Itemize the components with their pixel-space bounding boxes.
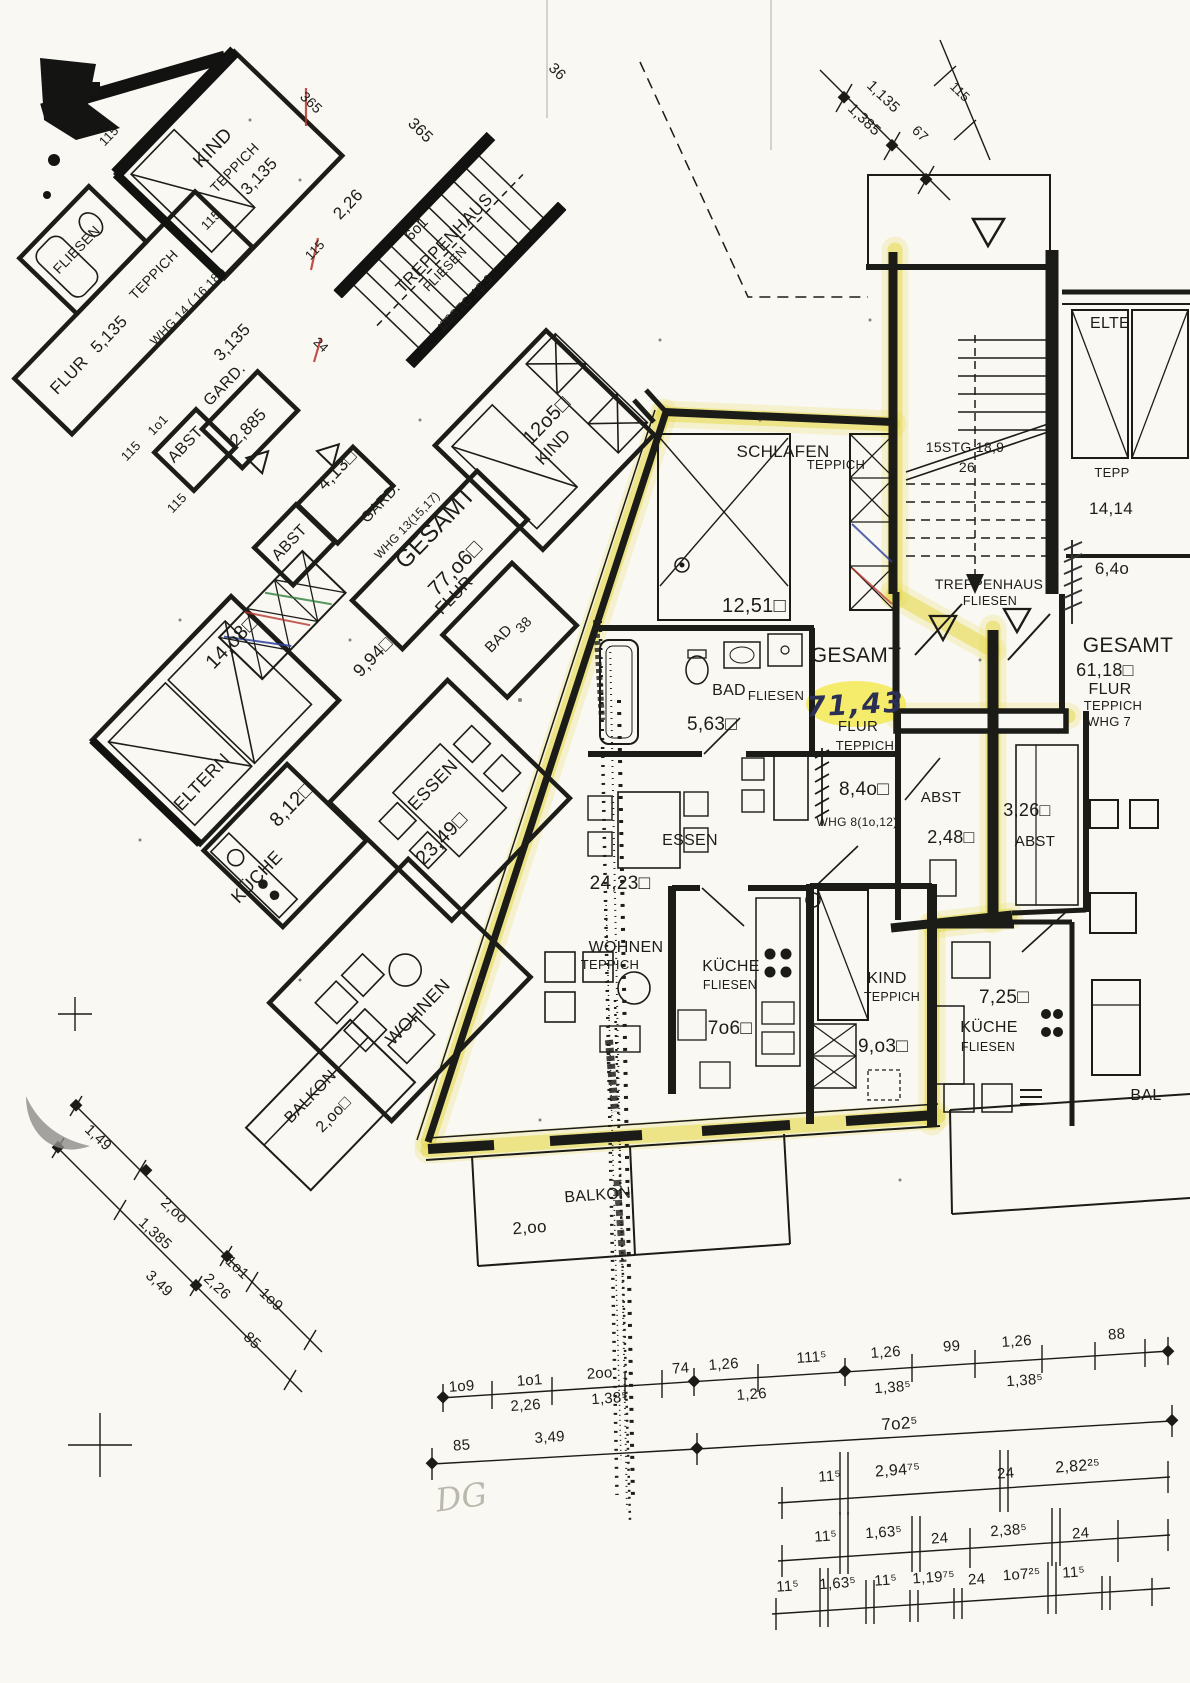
room-label: GARD. bbox=[358, 479, 404, 526]
dim-label: 11⁵ bbox=[814, 1527, 838, 1546]
room-label: TEPPICH bbox=[581, 957, 639, 972]
scanned-floorplan-page: KIND TEPPICH 3,135 115 115 2,26 115 365 … bbox=[0, 0, 1190, 1683]
dim-label: 3,49 bbox=[142, 1267, 176, 1300]
dim-label: 88 bbox=[1107, 1325, 1125, 1343]
dim-label: 7o2⁵ bbox=[881, 1413, 919, 1435]
dim-label: 11⁵ bbox=[818, 1467, 842, 1486]
room-label: KÜCHE bbox=[960, 1018, 1018, 1036]
dim-label: 365 bbox=[297, 88, 326, 116]
area-label: 6,4o bbox=[1095, 559, 1129, 578]
dim-label: 111⁵ bbox=[796, 1348, 827, 1367]
room-label: FLUR bbox=[46, 352, 91, 398]
room-label: WOHNEN bbox=[589, 939, 664, 956]
dim-label: 1,26 bbox=[736, 1385, 768, 1404]
area-label: 24,23□ bbox=[590, 873, 651, 894]
room-label: BAD bbox=[712, 682, 746, 699]
stairs bbox=[906, 335, 1048, 594]
dim-label: 115 bbox=[302, 237, 328, 263]
area-label: 3,26□ bbox=[1003, 800, 1050, 820]
dim-label: 115 bbox=[947, 79, 973, 105]
dim-label: 74 bbox=[671, 1359, 689, 1377]
room-label: ABST bbox=[1015, 833, 1055, 850]
dim-label: 1o9 bbox=[256, 1285, 287, 1315]
area-label: 61,18□ bbox=[1076, 660, 1134, 680]
area-label: 14,o8□ bbox=[202, 612, 262, 673]
dim-label: 2,38⁵ bbox=[990, 1521, 1028, 1541]
floorplan-canvas: KIND TEPPICH 3,135 115 115 2,26 115 365 … bbox=[0, 0, 1190, 1683]
dim-label: 99 bbox=[942, 1337, 960, 1355]
dim-label: 11⁵ bbox=[776, 1577, 800, 1596]
room-label: TEPPICH bbox=[1084, 698, 1142, 713]
room-label: BAL bbox=[1130, 1087, 1161, 1104]
dim-label: 1,19⁷⁵ bbox=[912, 1568, 956, 1588]
total-label: GESAMT bbox=[811, 644, 901, 667]
area-label: 8,4o□ bbox=[839, 779, 889, 800]
room-label: TEPPICH bbox=[836, 738, 894, 753]
area-label: 7,25□ bbox=[979, 987, 1029, 1008]
dim-label: 1,38⁵ bbox=[1006, 1371, 1044, 1391]
room-label: FLIESEN bbox=[748, 688, 804, 703]
dim-label: 3,135 bbox=[210, 320, 254, 365]
room-label: WOHNEN bbox=[381, 975, 454, 1049]
dim-label: 3,49 bbox=[534, 1428, 566, 1447]
dim-label: 1,26 bbox=[870, 1343, 902, 1362]
room-label: WHG 7 bbox=[1087, 714, 1131, 729]
room-label: TREPPENHAUS bbox=[935, 576, 1043, 592]
dim-label: 1o1 bbox=[145, 412, 171, 439]
dim-label: 2,oo bbox=[157, 1194, 191, 1227]
stair-label: 26 bbox=[959, 459, 975, 475]
dim-label: 115 bbox=[118, 438, 144, 464]
room-label: ELTERN bbox=[170, 749, 234, 814]
dim-label: 85 bbox=[452, 1436, 470, 1454]
apartment-label: WHG 8(1o,12) bbox=[817, 815, 898, 829]
dim-label: 85 bbox=[240, 1329, 264, 1353]
dim-label: 2,26 bbox=[329, 185, 366, 223]
room-label: FLIESEN bbox=[963, 594, 1017, 608]
dim-label: 24 bbox=[996, 1464, 1014, 1482]
area-label: 2,oo bbox=[512, 1217, 548, 1238]
room-label: ESSEN bbox=[404, 755, 462, 814]
dim-label: 1,385 bbox=[135, 1214, 175, 1253]
area-label: 7o6□ bbox=[708, 1018, 753, 1039]
room-label: ELTE bbox=[1090, 315, 1130, 332]
room-label: ABST bbox=[165, 424, 207, 467]
handwritten-total: 71,43 bbox=[805, 685, 905, 723]
dim-label: 1o1 bbox=[516, 1371, 543, 1390]
pencil-note: DG bbox=[432, 1475, 490, 1520]
wing-labels: KIND TEPPICH 3,135 115 115 2,26 115 365 … bbox=[46, 60, 973, 1136]
dim-label: 36 bbox=[545, 60, 569, 84]
area-label: 9,94□ bbox=[349, 633, 396, 681]
dim-label: 67 bbox=[909, 122, 932, 145]
dim-label: 1,135 bbox=[863, 77, 903, 116]
dim-label: 365 bbox=[404, 115, 436, 146]
dim-label: 2,94⁷⁵ bbox=[874, 1460, 920, 1480]
area-label: 9,o3□ bbox=[858, 1036, 908, 1057]
area-label: 8,12□ bbox=[266, 778, 318, 831]
dim-label: 2,82²⁵ bbox=[1055, 1456, 1101, 1476]
stair-label: 15STG 18,9 bbox=[926, 439, 1005, 455]
room-label: FLUR bbox=[1089, 681, 1132, 698]
dim-label: 1,26 bbox=[1001, 1332, 1033, 1351]
dim-label: 115 bbox=[198, 207, 224, 233]
dim-label: 1,63⁵ bbox=[865, 1523, 903, 1543]
room-label: ESSEN bbox=[662, 832, 718, 849]
dim-label: 115 bbox=[164, 490, 190, 516]
dim-label: 38 bbox=[512, 613, 535, 636]
room-label: ABST bbox=[921, 789, 961, 806]
dim-label: 1,26 bbox=[708, 1355, 740, 1374]
dim-label: 24 bbox=[930, 1529, 948, 1547]
area-label: 5,63□ bbox=[687, 714, 737, 735]
room-label: TEPPICH bbox=[807, 457, 865, 472]
dim-label: 11⁵ bbox=[1062, 1563, 1086, 1582]
dim-label: 1,38⁵ bbox=[874, 1378, 912, 1398]
room-label: KÜCHE bbox=[702, 957, 760, 975]
total-label: GESAMT bbox=[1083, 634, 1173, 657]
dim-label: 1o7²⁵ bbox=[1002, 1565, 1041, 1585]
dim-label: 11⁵ bbox=[874, 1571, 898, 1590]
dim-label: 24 bbox=[967, 1570, 985, 1588]
dim-label: 1o9 bbox=[448, 1377, 475, 1396]
dim-label: 24 bbox=[1071, 1524, 1089, 1542]
area-label: 2,48□ bbox=[927, 827, 974, 847]
dim-label: 1,63⁵ bbox=[819, 1574, 857, 1594]
dim-label: 1,385 bbox=[844, 100, 884, 139]
dim-label: 2,26 bbox=[510, 1396, 542, 1415]
room-label: FLIESEN bbox=[703, 978, 757, 992]
area-label: 12,51□ bbox=[722, 595, 786, 617]
dim-label: 5,135 bbox=[87, 312, 131, 357]
area-label: 14,14 bbox=[1089, 499, 1133, 518]
room-label: FLIESEN bbox=[50, 222, 104, 277]
room-label: FLIESEN bbox=[961, 1040, 1015, 1054]
dim-label: 24 bbox=[310, 334, 331, 355]
room-label: TEPPICH bbox=[864, 990, 920, 1004]
room-label: KIND bbox=[867, 970, 906, 987]
room-label: BAD bbox=[482, 622, 516, 657]
dim-label: 2oo bbox=[586, 1364, 613, 1383]
dim-label: 1,49 bbox=[81, 1121, 115, 1154]
room-label: TEPP bbox=[1094, 465, 1129, 480]
dim-label: 1,38⁵ bbox=[591, 1389, 629, 1409]
dim-label: 2,26 bbox=[200, 1270, 234, 1303]
